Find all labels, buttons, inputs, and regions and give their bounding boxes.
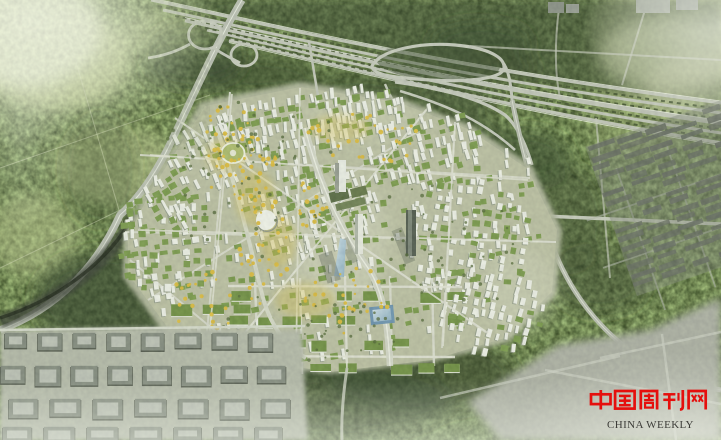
svg-text:CHINA WEEKLY: CHINA WEEKLY	[607, 419, 694, 431]
